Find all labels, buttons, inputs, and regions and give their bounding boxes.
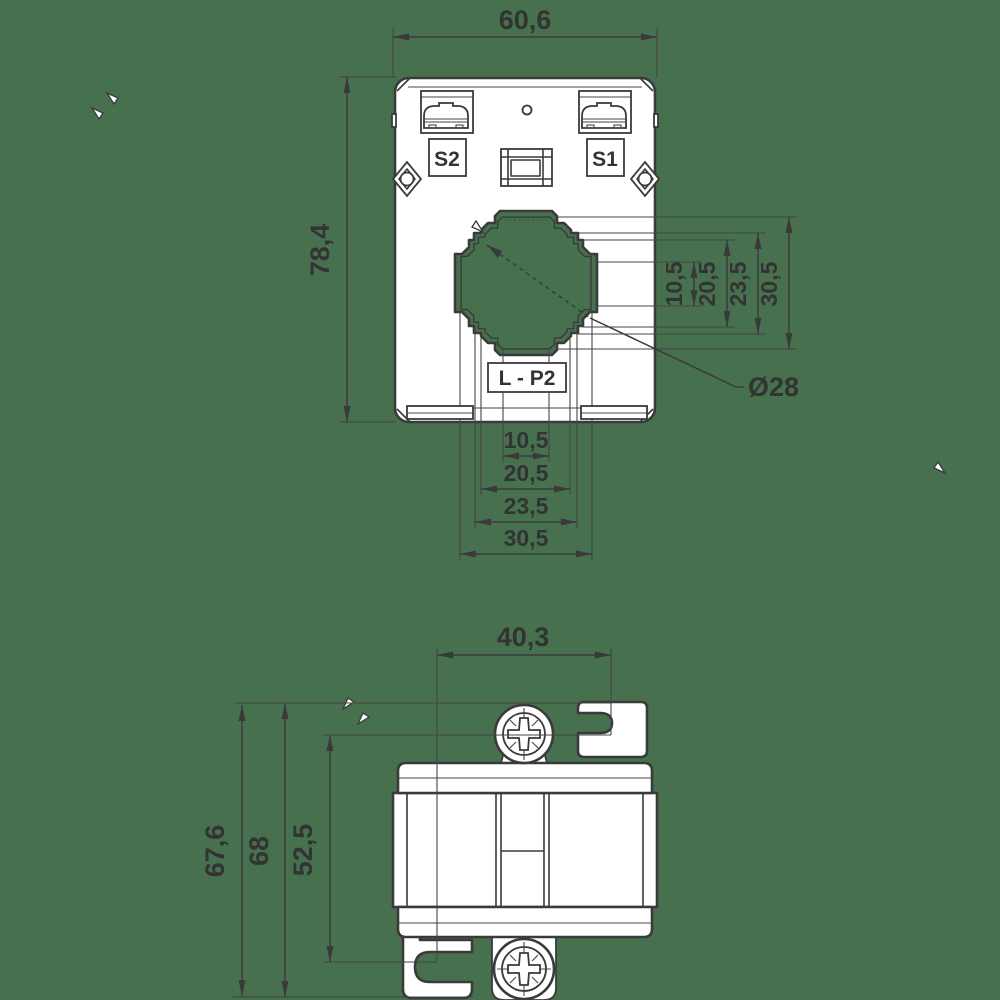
front-view: S2 S1 (92, 0, 945, 724)
v-chain-3: 30,5 (756, 261, 782, 306)
dim-height-total: 68 (244, 703, 289, 997)
dim-clip-width-value: 40,3 (497, 622, 550, 652)
technical-drawing-canvas: S2 S1 (0, 0, 1000, 1000)
din-hook-top (578, 702, 647, 757)
side-tab-right (654, 114, 658, 127)
terminal-screw-right (579, 91, 631, 133)
s1-label: S1 (592, 148, 618, 171)
v-chain-2: 23,5 (725, 261, 751, 306)
grip-tooth (107, 93, 118, 104)
pilot-hole (523, 106, 532, 115)
side-tab-left (392, 114, 396, 127)
v-chain-0: 10,5 (661, 261, 687, 306)
dim-height-clip: 52,5 (288, 735, 334, 962)
grip-tooth (92, 108, 103, 119)
dim-height-total-value: 68 (244, 836, 274, 866)
dim-height-outer: 67,6 (200, 705, 246, 996)
diameter-label: Ø28 (748, 372, 799, 402)
dim-height-outer-value: 67,6 (200, 825, 230, 878)
side-view: 40,3 67,6 68 52,5 (200, 622, 657, 1000)
h-chain-3: 30,5 (504, 525, 549, 551)
dim-height: 78,4 (305, 77, 397, 422)
dim-height-value: 78,4 (305, 224, 335, 277)
terminal-screw-left (421, 91, 473, 133)
dim-horizontal-chain: 10,5 20,5 23,5 30,5 (460, 427, 592, 558)
v-chain-1: 20,5 (694, 261, 720, 306)
s2-label: S2 (434, 148, 460, 171)
dim-height-clip-value: 52,5 (288, 824, 318, 877)
h-chain-2: 23,5 (504, 493, 549, 519)
screw-bottom (494, 939, 554, 999)
screw-top (495, 705, 553, 763)
dim-vertical-chain: 10,5 20,5 23,5 30,5 (661, 217, 793, 349)
h-chain-1: 20,5 (504, 460, 549, 486)
h-chain-0: 10,5 (504, 427, 549, 453)
side-body-bottom-cap (398, 907, 652, 937)
side-body-middle (393, 793, 657, 907)
dim-clip-width: 40,3 (437, 622, 611, 659)
dim-width-value: 60,6 (499, 5, 552, 35)
grip-tooth (934, 462, 945, 473)
winding-label: L - P2 (499, 367, 556, 390)
grip-tooth (358, 713, 369, 724)
dim-width: 60,6 (393, 5, 657, 78)
sealing-window (501, 149, 552, 186)
